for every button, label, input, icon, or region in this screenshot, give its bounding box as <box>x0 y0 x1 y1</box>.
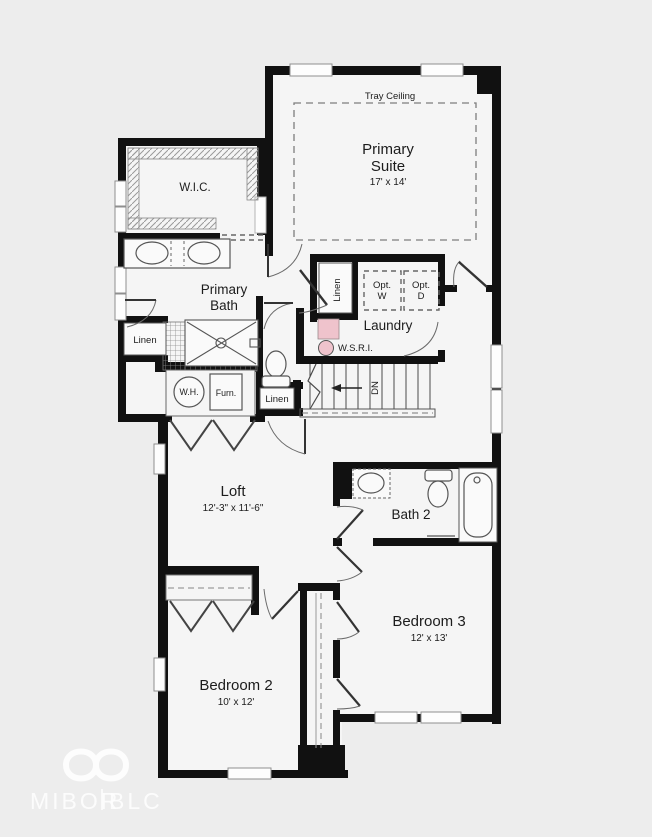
bedroom-2-dims: 10' x 12' <box>218 697 255 708</box>
linen-closet-hall: Linen <box>260 388 294 409</box>
laundry-label: Laundry <box>364 318 413 333</box>
watermark: MIBOR BLC <box>30 752 163 815</box>
watermark-brand-left: MIBOR <box>30 788 120 814</box>
window <box>375 712 417 723</box>
opt-dryer-label-1: Opt. <box>412 280 430 291</box>
linen-label: Linen <box>332 278 343 301</box>
window <box>154 444 165 474</box>
primary-suite-dims: 17' x 14' <box>370 177 407 188</box>
window <box>421 64 463 76</box>
wall-opening <box>255 197 266 233</box>
floor-area <box>122 70 497 774</box>
wsri-label: W.S.R.I. <box>338 343 373 354</box>
window <box>115 267 126 293</box>
linen-label: Linen <box>265 394 288 405</box>
wsri-marker <box>319 341 334 356</box>
linen-closet-primary-bath: Linen <box>124 323 166 355</box>
window <box>115 207 126 232</box>
window <box>491 390 502 433</box>
bathtub-fixture <box>459 468 497 542</box>
opt-washer-label-1: Opt. <box>373 280 391 291</box>
floor-plan: Tray Ceiling Primary Suite 17' x 14' W.I… <box>0 0 652 837</box>
window <box>228 768 271 779</box>
primary-bath-label-1: Primary <box>201 282 248 297</box>
bedroom-2-label: Bedroom 2 <box>199 677 272 694</box>
furnace-label: Furn. <box>216 388 237 398</box>
watermark-divider <box>101 789 103 810</box>
wic-label: W.I.C. <box>179 182 210 194</box>
window <box>115 181 126 206</box>
bath-2-label: Bath 2 <box>391 507 430 522</box>
double-vanity <box>124 239 230 268</box>
window <box>290 64 332 76</box>
loft-label: Loft <box>220 483 246 500</box>
stairs-dn-label: DN <box>370 381 381 395</box>
opt-dryer-label-2: D <box>418 291 425 302</box>
window <box>154 658 165 691</box>
primary-suite-label-1: Primary <box>362 141 414 158</box>
infinity-logo-icon <box>66 752 126 779</box>
shower-fixture <box>163 320 260 371</box>
linen-closet-laundry: Linen <box>319 263 352 313</box>
tray-ceiling-label: Tray Ceiling <box>365 91 415 102</box>
bedroom-2-closet <box>166 575 252 600</box>
bedroom-3-dims: 12' x 13' <box>411 633 448 644</box>
linen-label: Linen <box>133 335 156 346</box>
opt-washer-label-2: W <box>378 291 387 302</box>
bath2-vanity <box>353 469 390 498</box>
water-heater-label: W.H. <box>179 387 198 397</box>
wsri-pad <box>318 319 339 339</box>
loft-dims: 12'-3" x 11'-6" <box>203 503 264 514</box>
floor-plan-page: Tray Ceiling Primary Suite 17' x 14' W.I… <box>0 0 652 837</box>
window <box>115 294 126 320</box>
primary-suite-label-2: Suite <box>371 158 405 175</box>
window <box>491 345 502 388</box>
watermark-brand-right: BLC <box>109 788 163 814</box>
mechanical-closet: W.H. Furn. <box>166 370 255 416</box>
window <box>421 712 461 723</box>
bedroom-3-label: Bedroom 3 <box>392 613 465 630</box>
primary-bath-label-2: Bath <box>210 298 238 313</box>
